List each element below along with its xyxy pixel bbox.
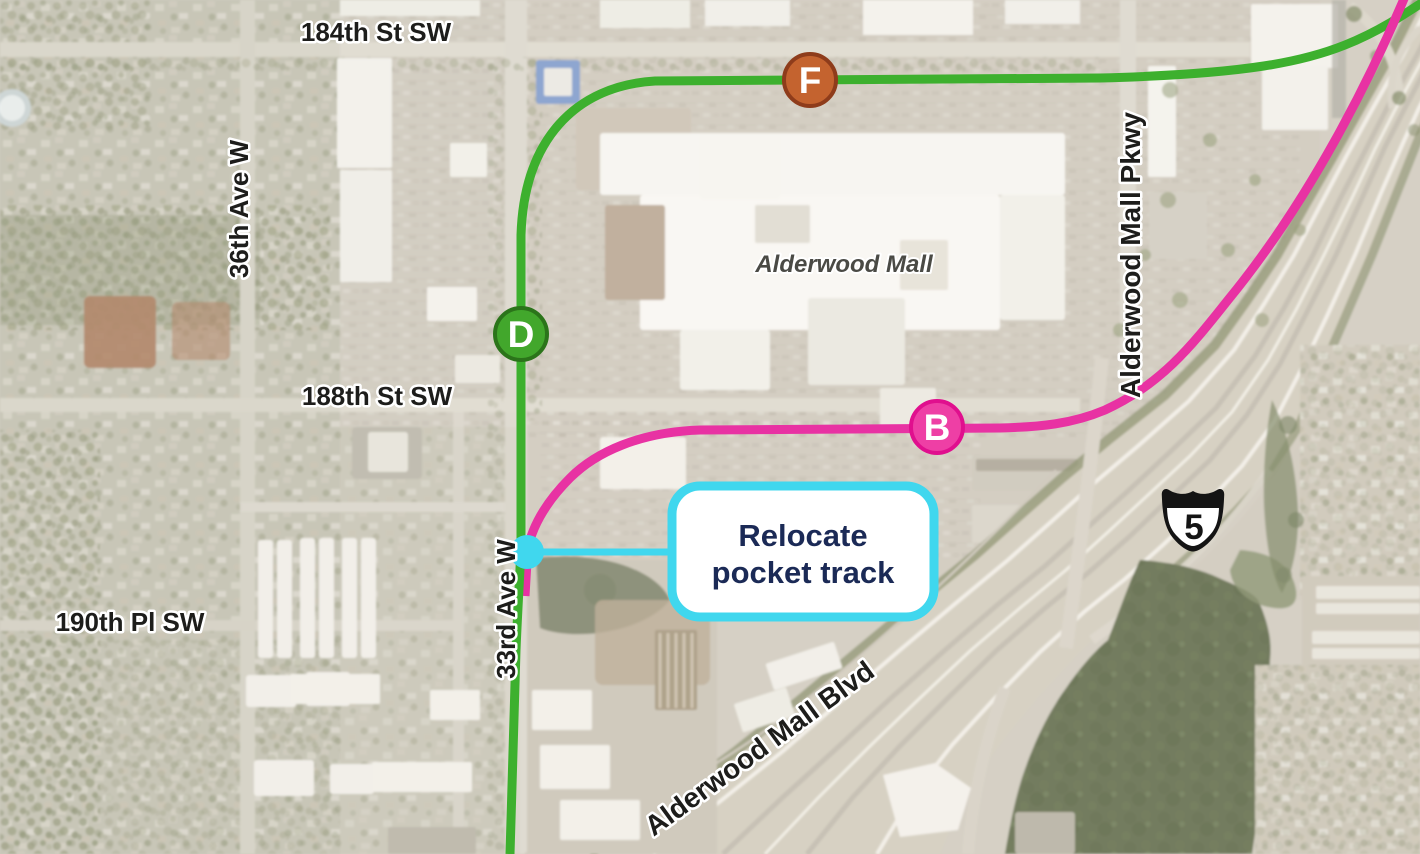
svg-text:188th St SW: 188th St SW	[302, 381, 453, 411]
svg-text:D: D	[508, 314, 535, 355]
svg-text:5: 5	[1184, 508, 1203, 547]
svg-text:190th Pl SW: 190th Pl SW	[56, 607, 205, 637]
svg-text:B: B	[924, 407, 951, 448]
svg-text:Relocate: Relocate	[738, 518, 867, 553]
svg-text:36th Ave W: 36th Ave W	[224, 139, 254, 278]
svg-text:Alderwood Mall: Alderwood Mall	[754, 251, 934, 278]
svg-text:pocket track: pocket track	[712, 555, 895, 590]
svg-text:184th St SW: 184th St SW	[301, 17, 452, 47]
svg-text:F: F	[799, 60, 822, 101]
svg-text:Alderwood Mall Pkwy: Alderwood Mall Pkwy	[1115, 111, 1146, 398]
svg-text:33rd Ave W: 33rd Ave W	[491, 539, 521, 679]
